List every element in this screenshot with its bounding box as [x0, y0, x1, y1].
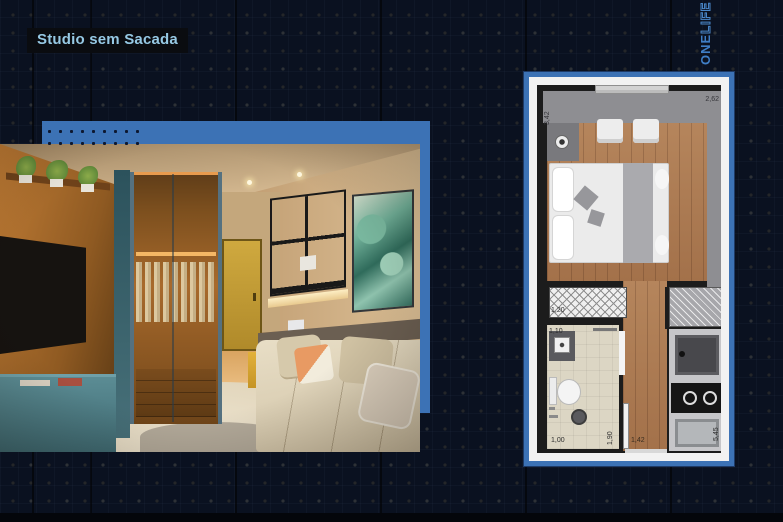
- page-title: Studio sem Sacada: [27, 28, 188, 53]
- plan-kitchen-faucet: [679, 351, 685, 357]
- floor-plan: 3,42 2,62 1,20 1,10 1,00 1,90 1,42 5,45: [537, 85, 721, 453]
- plan-entry-threshold: [625, 449, 667, 453]
- plan-burner: [683, 391, 697, 405]
- brand-logo-one: ONE: [698, 34, 713, 65]
- interior-render-photo: [0, 144, 420, 452]
- plan-bed-fold: [655, 169, 669, 189]
- dim-room-length: 3,42: [544, 95, 551, 125]
- plan-bed-fold: [655, 235, 669, 255]
- plan-right-wall-zone: [707, 91, 721, 289]
- dim-bath-length: 1,90: [607, 417, 614, 445]
- floor-plan-frame: 3,42 2,62 1,20 1,10 1,00 1,90 1,42 5,45: [524, 72, 734, 466]
- dim-room-width: 2,62: [677, 96, 719, 103]
- dim-hall: 1,42: [631, 437, 645, 444]
- plan-entry-door-leaf: [623, 403, 629, 449]
- bottom-black-strip: [0, 513, 783, 522]
- plan-lamp: [555, 135, 569, 149]
- plan-pillow: [552, 215, 574, 260]
- plan-pillow: [552, 167, 574, 212]
- dim-bath-entry: 1,10: [549, 328, 563, 335]
- decorative-dots-row: [48, 142, 139, 145]
- decorative-dots-row: [48, 130, 139, 133]
- dim-bath-width: 1,00: [551, 437, 565, 444]
- plan-burner: [703, 391, 717, 405]
- plan-toilet-tank: [549, 377, 557, 405]
- dim-wardrobe: 1,20: [551, 307, 565, 314]
- plan-window: [595, 85, 669, 94]
- plan-bath-sink: [554, 337, 570, 353]
- plan-stool: [597, 119, 623, 143]
- plan-shower-drain: [571, 409, 587, 425]
- brand-logo: ONELIFE: [698, 3, 720, 65]
- plan-stool: [633, 119, 659, 143]
- plan-bathroom-door: [619, 331, 625, 375]
- brand-logo-life: LIFE: [698, 2, 713, 34]
- floor-plan-matte: 3,42 2,62 1,20 1,10 1,00 1,90 1,42 5,45: [529, 77, 729, 461]
- slide: Studio sem Sacada ONELIFE: [0, 0, 783, 522]
- plan-towel-bar: [593, 328, 617, 331]
- plan-fridge: [669, 287, 721, 327]
- dim-kitchen-side: 5,45: [713, 411, 720, 441]
- photo-vignette: [0, 144, 420, 452]
- plan-hall-floor: [623, 281, 667, 451]
- plan-shower-head: [549, 407, 555, 410]
- plan-shower-head: [549, 415, 558, 418]
- plan-bed-runner: [623, 163, 653, 263]
- plan-toilet: [557, 379, 581, 405]
